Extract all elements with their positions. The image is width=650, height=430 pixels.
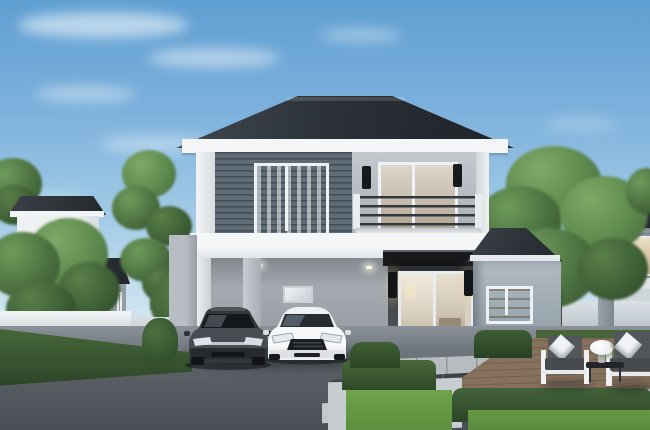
entrance-sconce-icon [388,272,397,298]
cloud [545,118,617,130]
bush-by-entrance [350,342,400,368]
roof-fascia [182,139,508,153]
architectural-render [0,0,650,430]
bush-right-of-door [474,330,532,358]
entrance-sconce-icon [464,270,473,296]
lawn-panel-right [468,410,650,430]
sofa-frame [609,372,650,376]
carport-back-window [283,286,313,303]
coupe-white [263,303,351,365]
balcony-railing [357,196,478,229]
cloud [148,48,280,68]
side-wing-lit-window [486,286,533,324]
window-mullion [285,166,288,231]
armchair-frame [543,370,587,374]
flower-bouquet [590,340,614,355]
tree-foliage [578,238,648,300]
roof-ridge-highlight [286,97,406,101]
table-leg [619,368,621,382]
cloud [35,86,135,102]
sedan-dark [183,302,273,370]
upper-window-bedroom [254,163,329,240]
cloud [320,28,402,42]
furniture-shadow [608,382,650,392]
window-mullion [505,289,508,315]
wall-sconce-icon [453,164,462,187]
armchair-seat [545,358,585,370]
wall-sconce-icon [362,166,371,189]
cloud [18,12,188,38]
lawn-panel-center [346,390,452,430]
corner-column-left [196,152,215,234]
interior-lamp-glow [409,286,412,296]
carport-downlight-icon [366,266,372,269]
table-leg [589,368,591,382]
bush-by-carport [142,318,178,366]
